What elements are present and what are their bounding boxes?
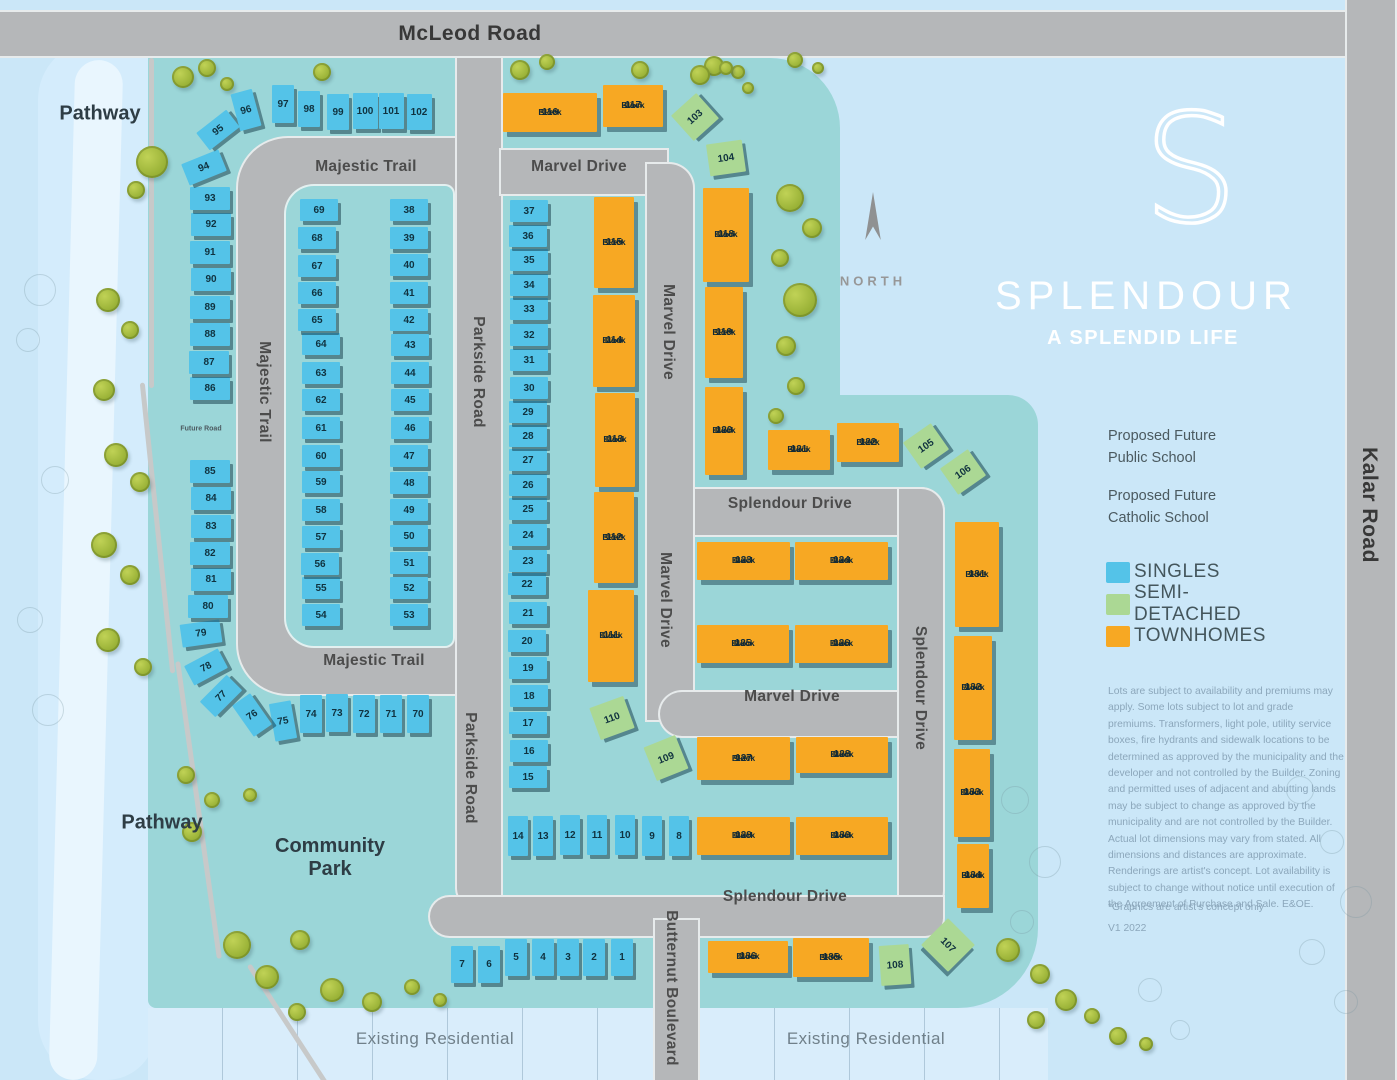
- brand-name: SPLENDOUR: [995, 274, 1291, 319]
- road-label: Marvel Drive: [531, 158, 627, 176]
- lot-single-91: 91: [190, 241, 230, 264]
- tree-icon: [127, 181, 145, 199]
- tree-icon: [104, 443, 128, 467]
- tree-icon: [812, 62, 824, 74]
- tree-icon: [539, 54, 555, 70]
- lot-single-33: 33: [510, 298, 548, 320]
- lot-single-52: 52: [390, 577, 428, 599]
- block-townhome-132: Block1327 Units: [954, 636, 992, 740]
- tree-outline-icon: [1029, 846, 1061, 878]
- lot-single-48: 48: [390, 472, 428, 494]
- tree-icon: [198, 59, 216, 77]
- label-proposed-catholic-school: Proposed Future Catholic School: [1108, 486, 1216, 530]
- road-label: McLeod Road: [398, 22, 541, 46]
- legend-swatch-townhomes: [1106, 626, 1130, 647]
- lot-single-3: 3: [557, 939, 579, 976]
- brand-logo-letter: S: [1143, 88, 1238, 253]
- tree-icon: [690, 65, 710, 85]
- road-label: Kalar Road: [1357, 447, 1381, 563]
- tree-icon: [768, 408, 784, 424]
- tree-icon: [1084, 1008, 1100, 1024]
- tree-icon: [220, 77, 234, 91]
- block-townhome-118: Block1186 Units: [703, 188, 749, 282]
- road-label: Splendour Drive: [723, 888, 847, 906]
- tree-icon: [243, 788, 257, 802]
- block-label: 6 Units: [734, 558, 753, 565]
- lot-single-1: 1: [611, 939, 633, 976]
- tree-icon: [136, 146, 168, 178]
- lot-single-101: 101: [379, 93, 404, 129]
- road-label: Marvel Drive: [656, 552, 674, 648]
- lot-single-23: 23: [509, 550, 547, 572]
- lot-single-81: 81: [191, 568, 231, 591]
- lot-single-62: 62: [302, 389, 340, 411]
- tree-outline-icon: [1334, 990, 1358, 1014]
- legend-label-singles: SINGLES: [1134, 561, 1220, 583]
- lot-single-70: 70: [407, 695, 429, 733]
- lot-single-25: 25: [509, 498, 547, 520]
- block-townhome-114: Block1146 Units: [593, 295, 635, 387]
- tree-outline-icon: [41, 466, 69, 494]
- lot-single-63: 63: [302, 362, 340, 384]
- tree-icon: [433, 993, 447, 1007]
- block-label: 6 Units: [605, 437, 624, 444]
- lot-single-20: 20: [508, 630, 546, 652]
- lot-semi-108: 108: [879, 944, 912, 986]
- lot-single-32: 32: [510, 324, 548, 346]
- block-townhome-133: Block1336 Units: [954, 749, 990, 837]
- lot-single-16: 16: [510, 740, 548, 762]
- lot-single-31: 31: [510, 349, 548, 371]
- road-label: Butternut Boulevard: [662, 910, 680, 1066]
- block-label: 4 Units: [789, 447, 808, 454]
- block-townhome-112: Block1126 Units: [594, 492, 634, 583]
- lot-single-8: 8: [669, 816, 689, 856]
- lot-single-85: 85: [190, 460, 230, 483]
- lot-single-92: 92: [191, 213, 231, 236]
- lot-single-99: 99: [327, 94, 349, 130]
- block-label: 4 Units: [858, 439, 877, 446]
- block-townhome-131: Block1317 Units: [955, 522, 999, 627]
- area-label: Existing Residential: [787, 1029, 945, 1049]
- tree-icon: [787, 377, 805, 395]
- block-label: 6 Units: [734, 833, 753, 840]
- lot-single-79: 79: [180, 619, 223, 647]
- lot-single-86: 86: [190, 377, 230, 400]
- tree-icon: [1055, 989, 1077, 1011]
- block-townhome-134: Block1344 Units: [957, 844, 989, 908]
- tree-icon: [742, 82, 754, 94]
- block-label: 6 Units: [604, 338, 623, 345]
- tree-outline-icon: [1340, 886, 1372, 918]
- block-townhome-121: Block1214 Units: [768, 430, 830, 470]
- area-label: Community Park: [255, 835, 405, 881]
- tree-icon: [223, 931, 251, 959]
- block-label: 7 Units: [963, 685, 982, 692]
- tree-icon: [130, 472, 150, 492]
- block-townhome-120: Block1206 Units: [705, 387, 743, 475]
- lot-single-17: 17: [509, 712, 547, 734]
- lot-single-18: 18: [510, 685, 548, 707]
- legend-label-semi-detached: SEMI-DETACHED: [1134, 582, 1241, 626]
- lot-single-72: 72: [353, 695, 375, 733]
- block-label: 6 Units: [604, 534, 623, 541]
- lot-single-5: 5: [505, 939, 527, 976]
- road-label: Marvel Drive: [744, 688, 840, 706]
- pathway-line: [149, 58, 154, 388]
- lot-single-66: 66: [298, 282, 336, 304]
- lot-single-100: 100: [353, 93, 378, 129]
- lot-single-37: 37: [510, 200, 548, 222]
- lot-single-28: 28: [509, 425, 547, 447]
- road-label: Marvel Drive: [659, 284, 677, 380]
- block-label: 6 Units: [832, 752, 851, 759]
- road-label: Majestic Trail: [315, 158, 417, 176]
- lot-single-47: 47: [390, 445, 428, 467]
- tree-icon: [404, 979, 420, 995]
- block-label: 5 Units: [738, 954, 757, 961]
- block-label: 6 Units: [714, 329, 733, 336]
- block-label: 6 Units: [601, 633, 620, 640]
- lot-semi-104: 104: [706, 140, 746, 177]
- lot-single-68: 68: [298, 227, 336, 249]
- lot-single-60: 60: [302, 445, 340, 467]
- lot-single-4: 4: [532, 939, 554, 976]
- tree-icon: [177, 766, 195, 784]
- area-label: Existing Residential: [356, 1029, 514, 1049]
- tree-outline-icon: [1010, 910, 1034, 934]
- tree-icon: [91, 532, 117, 558]
- lot-single-43: 43: [391, 334, 429, 356]
- block-label: 6 Units: [540, 109, 559, 116]
- lot-single-67: 67: [298, 255, 336, 277]
- legend-label-townhomes: TOWNHOMES: [1134, 625, 1266, 647]
- lot-single-12: 12: [560, 815, 580, 855]
- tree-icon: [120, 565, 140, 585]
- block-townhome-125: Block1256 Units: [697, 625, 789, 663]
- lot-single-88: 88: [190, 323, 230, 346]
- block-label: 6 Units: [604, 239, 623, 246]
- tree-icon: [96, 628, 120, 652]
- lot-single-22: 22: [508, 573, 546, 595]
- lot-single-41: 41: [390, 282, 428, 304]
- tree-icon: [313, 63, 331, 81]
- tree-icon: [255, 965, 279, 989]
- version-label: V1 2022: [1108, 923, 1146, 934]
- tree-outline-icon: [1299, 939, 1325, 965]
- graphics-note: *Graphics are artist's concept only: [1108, 902, 1264, 913]
- lot-single-97: 97: [272, 85, 294, 123]
- tree-icon: [631, 61, 649, 79]
- block-label: 4 Units: [623, 103, 642, 110]
- lot-single-65: 65: [298, 309, 336, 331]
- block-townhome-135: Block1355 Units: [793, 938, 869, 977]
- legend-swatch-semi-detached: [1106, 594, 1130, 615]
- lot-single-64: 64: [302, 333, 340, 355]
- brand-tagline: A SPLENDID LIFE: [995, 327, 1291, 350]
- lot-single-9: 9: [642, 816, 662, 856]
- road-label: Splendour Drive: [728, 495, 852, 513]
- tree-icon: [172, 66, 194, 88]
- block-label: 6 Units: [716, 232, 735, 239]
- lot-single-6: 6: [478, 946, 500, 983]
- lot-single-54: 54: [302, 604, 340, 626]
- lot-single-44: 44: [391, 362, 429, 384]
- block-townhome-116: Block1166 Units: [503, 93, 597, 132]
- lot-single-98: 98: [298, 91, 320, 127]
- lot-single-39: 39: [390, 227, 428, 249]
- block-label: 6 Units: [832, 641, 851, 648]
- tree-icon: [510, 60, 530, 80]
- block-townhome-111: Block1116 Units: [588, 590, 634, 682]
- lot-single-21: 21: [509, 602, 547, 624]
- lot-single-49: 49: [390, 499, 428, 521]
- tree-icon: [996, 938, 1020, 962]
- tree-icon: [362, 992, 382, 1012]
- block-label: 6 Units: [734, 755, 753, 762]
- tree-icon: [802, 218, 822, 238]
- lot-single-24: 24: [509, 524, 547, 546]
- lot-single-45: 45: [391, 389, 429, 411]
- lot-single-74: 74: [300, 695, 322, 733]
- tree-icon: [1109, 1027, 1127, 1045]
- lot-single-34: 34: [510, 274, 548, 296]
- block-townhome-122: Block1224 Units: [837, 423, 899, 462]
- lot-single-2: 2: [583, 939, 605, 976]
- block-label: 6 Units: [962, 790, 981, 797]
- lot-single-83: 83: [191, 515, 231, 538]
- lot-single-38: 38: [390, 199, 428, 221]
- block-label: 6 Units: [714, 428, 733, 435]
- tree-icon: [290, 930, 310, 950]
- lot-single-59: 59: [302, 471, 340, 493]
- lot-single-71: 71: [380, 695, 402, 733]
- tree-outline-icon: [1001, 786, 1029, 814]
- area-label: Future Road: [180, 426, 221, 433]
- lot-single-46: 46: [391, 417, 429, 439]
- lot-single-84: 84: [191, 487, 231, 510]
- lot-single-56: 56: [301, 553, 339, 575]
- lot-single-80: 80: [188, 595, 228, 618]
- lot-single-58: 58: [302, 499, 340, 521]
- lot-single-40: 40: [390, 254, 428, 276]
- block-townhome-136: Block1365 Units: [708, 941, 788, 973]
- lot-single-35: 35: [510, 249, 548, 271]
- tree-icon: [771, 249, 789, 267]
- road-label: Majestic Trail: [323, 652, 425, 670]
- road-label: Majestic Trail: [255, 341, 273, 443]
- tree-icon: [776, 336, 796, 356]
- lot-single-93: 93: [190, 187, 230, 210]
- tree-icon: [787, 52, 803, 68]
- lot-single-87: 87: [189, 351, 229, 374]
- tree-icon: [121, 321, 139, 339]
- lot-single-27: 27: [509, 449, 547, 471]
- tree-icon: [93, 379, 115, 401]
- tree-outline-icon: [17, 607, 43, 633]
- lot-single-14: 14: [508, 816, 528, 856]
- lot-single-26: 26: [509, 474, 547, 496]
- tree-icon: [288, 1003, 306, 1021]
- block-townhome-119: Block1196 Units: [705, 287, 743, 378]
- road-label: Parkside Road: [461, 712, 479, 824]
- block-townhome-126: Block1266 Units: [795, 625, 888, 663]
- lot-single-13: 13: [533, 816, 553, 856]
- lot-single-29: 29: [509, 401, 547, 423]
- road-label: Parkside Road: [469, 316, 487, 428]
- tree-icon: [96, 288, 120, 312]
- lot-single-51: 51: [390, 552, 428, 574]
- tree-icon: [1139, 1037, 1153, 1051]
- block-townhome-115: Block1156 Units: [594, 197, 634, 288]
- lot-single-90: 90: [191, 268, 231, 291]
- lot-single-30: 30: [510, 377, 548, 399]
- road-label: Splendour Drive: [911, 626, 929, 750]
- block-label: 6 Units: [832, 833, 851, 840]
- tree-outline-icon: [1170, 1020, 1190, 1040]
- tree-outline-icon: [16, 328, 40, 352]
- lot-single-61: 61: [302, 417, 340, 439]
- block-townhome-130: Block1306 Units: [796, 817, 888, 855]
- lot-single-69: 69: [300, 199, 338, 221]
- lot-single-50: 50: [390, 525, 428, 547]
- disclaimer-text: Lots are subject to availability and pre…: [1108, 684, 1344, 914]
- legend-swatch-singles: [1106, 562, 1130, 583]
- road-mcleod: [0, 10, 1397, 58]
- lot-single-42: 42: [390, 309, 428, 331]
- block-label: 5 Units: [821, 954, 840, 961]
- tree-outline-icon: [32, 694, 64, 726]
- tree-icon: [783, 283, 817, 317]
- tree-icon: [134, 658, 152, 676]
- lot-single-102: 102: [407, 94, 432, 130]
- block-townhome-128: Block1286 Units: [796, 737, 888, 773]
- block-label: 6 Units: [733, 641, 752, 648]
- block-label: 6 Units: [832, 558, 851, 565]
- area-label: Pathway: [59, 103, 140, 126]
- lot-single-10: 10: [615, 815, 635, 855]
- lot-single-57: 57: [302, 526, 340, 548]
- tree-icon: [320, 978, 344, 1002]
- lot-single-89: 89: [190, 296, 230, 319]
- block-townhome-124: Block1246 Units: [795, 542, 888, 580]
- area-label: NORTH: [840, 274, 906, 289]
- tree-icon: [731, 65, 745, 79]
- block-label: 7 Units: [967, 571, 986, 578]
- block-townhome-117: Block1174 Units: [603, 85, 663, 127]
- lot-single-73: 73: [326, 694, 348, 732]
- tree-icon: [1030, 964, 1050, 984]
- block-label: 4 Units: [963, 873, 982, 880]
- lot-single-82: 82: [190, 542, 230, 565]
- block-townhome-123: Block1236 Units: [697, 542, 790, 580]
- lot-single-36: 36: [509, 225, 547, 247]
- block-townhome-129: Block1296 Units: [697, 817, 790, 855]
- tree-icon: [204, 792, 220, 808]
- lot-single-19: 19: [509, 657, 547, 679]
- north-arrow-icon: [860, 192, 886, 240]
- site-plan-map: 1234567891011121314151617181920212223242…: [0, 0, 1397, 1080]
- area-label: Pathway: [121, 812, 202, 835]
- block-townhome-113: Block1136 Units: [595, 393, 635, 487]
- label-proposed-public-school: Proposed Future Public School: [1108, 426, 1216, 470]
- lot-single-7: 7: [451, 946, 473, 983]
- tree-outline-icon: [1138, 978, 1162, 1002]
- lot-single-11: 11: [587, 815, 607, 855]
- lot-single-15: 15: [509, 766, 547, 788]
- lot-single-55: 55: [302, 577, 340, 599]
- tree-icon: [719, 61, 733, 75]
- block-townhome-127: Block1276 Units: [697, 737, 790, 780]
- tree-icon: [1027, 1011, 1045, 1029]
- tree-outline-icon: [24, 274, 56, 306]
- tree-icon: [776, 184, 804, 212]
- lot-single-53: 53: [390, 604, 428, 626]
